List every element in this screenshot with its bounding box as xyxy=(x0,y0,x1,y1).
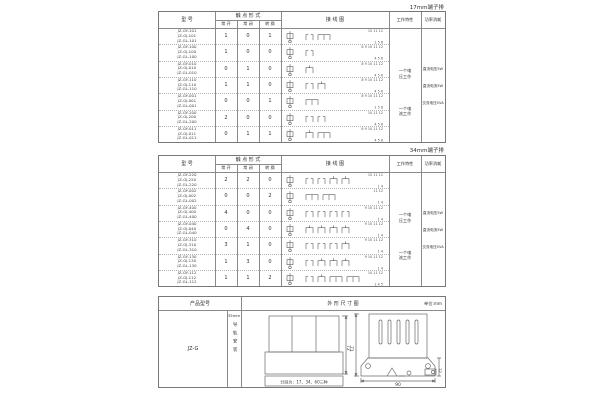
nc-count-cell: 0 xyxy=(237,110,259,126)
model-cell: JZ-GY-400 JZ-GJ-400 JZ-GL-400 xyxy=(160,205,214,221)
table-vline xyxy=(421,156,422,286)
col-header-power: 功率消耗 xyxy=(421,12,445,28)
contact-table-17mm: 型 号触 点 形 式常 开常 闭转 换接 线 图工作特性功率消耗JZ-GY-10… xyxy=(158,11,446,143)
front-view xyxy=(265,316,348,386)
product-model: JZ-G xyxy=(159,310,227,387)
work-note: 一个电 压工作 xyxy=(389,212,421,224)
wiring-diagram: 8 9 10 11 124 5 6 xyxy=(282,77,388,93)
col-header-work: 工作特性 xyxy=(389,156,421,172)
power-note: 直流电压5W xyxy=(421,209,445,217)
wiring-diagram: 10 11 124 5 6 xyxy=(282,110,388,126)
model-cell: JZ-GY-112 JZ-GJ-112 JZ-GL-112 xyxy=(160,270,214,286)
col-header-contact-form: 触 点 形 式 xyxy=(215,12,281,20)
svg-text:10 11 12: 10 11 12 xyxy=(368,173,383,177)
no-count-cell: 1 xyxy=(215,28,237,44)
wiring-diagram: 8 9 10 11 124 5 6 xyxy=(282,126,388,142)
co-count-cell: 0 xyxy=(259,221,281,237)
contact-table-34mm: 型 号触 点 形 式常 开常 闭转 换接 线 图工作特性功率消耗JZ-GY-22… xyxy=(158,155,446,287)
no-count-cell: 2 xyxy=(215,110,237,126)
svg-text:10 11 12: 10 11 12 xyxy=(368,111,383,115)
nc-count-cell: 1 xyxy=(237,61,259,77)
wiring-diagram: 10 11 121 4 5 xyxy=(282,270,388,286)
col-header-no: 常 开 xyxy=(215,164,237,172)
wiring-cell: 10 11 121 4 xyxy=(282,172,388,188)
model-cell: JZ-GY-002 JZ-GJ-002 JZ-GL-002 xyxy=(160,188,214,204)
power-note: 直流电流5W xyxy=(421,82,445,90)
model-cell: JZ-GY-130 JZ-GJ-130 JZ-GL-130 xyxy=(160,254,214,270)
nc-count-cell: 0 xyxy=(237,28,259,44)
power-note: 直流电压5W xyxy=(421,65,445,73)
col-header-nc: 常 闭 xyxy=(237,20,259,28)
wiring-cell: 8 9 10 11 124 5 6 xyxy=(282,126,388,142)
no-count-cell: 4 xyxy=(215,205,237,221)
svg-text:10 11 12: 10 11 12 xyxy=(368,29,383,33)
model-cell: JZ-GY-011 JZ-GJ-011 JZ-GL-011 xyxy=(160,126,214,142)
model-cell: JZ-GY-110 JZ-GJ-110 JZ-GL-110 xyxy=(160,77,214,93)
no-count-cell: 0 xyxy=(215,188,237,204)
svg-text:9 10 11 12: 9 10 11 12 xyxy=(365,238,383,242)
wiring-diagram: 8 9 10 11 121 5 6 xyxy=(282,93,388,109)
co-count-cell: 1 xyxy=(259,93,281,109)
no-count-cell: 1 xyxy=(215,254,237,270)
co-count-cell: 2 xyxy=(259,188,281,204)
wiring-diagram: 10 11 121 4 xyxy=(282,172,388,188)
no-count-cell: 2 xyxy=(215,172,237,188)
wiring-cell: 8 9 10 11 124 5 6 xyxy=(282,61,388,77)
nc-count-cell: 1 xyxy=(237,126,259,142)
model-cell: JZ-GY-010 JZ-GJ-010 JZ-GL-010 xyxy=(160,61,214,77)
wiring-diagram: 9 10 11 121 4 xyxy=(282,237,388,253)
svg-text:9 10 11 12: 9 10 11 12 xyxy=(365,255,383,259)
model-cell: JZ-GY-220 JZ-GJ-220 JZ-GL-220 xyxy=(160,172,214,188)
rail-size: 35mm xyxy=(227,312,241,320)
nc-count-cell: 2 xyxy=(237,172,259,188)
side-width-dim: 90 xyxy=(395,382,401,387)
svg-text:9 10 11 12: 9 10 11 12 xyxy=(365,206,383,210)
svg-text:9 10 11 12: 9 10 11 12 xyxy=(365,222,383,226)
wiring-cell: 11 121 4 xyxy=(282,188,388,204)
col-header-no: 常 开 xyxy=(215,20,237,28)
datasheet-page: 17mm端子排 型 号触 点 形 式常 开常 闭转 换接 线 图工作特性功率消耗… xyxy=(0,0,600,400)
model-cell: JZ-GY-101 JZ-GJ-101 JZ-GL-101 xyxy=(160,28,214,44)
co-count-cell: 0 xyxy=(259,61,281,77)
wiring-cell: 9 10 11 121 4 xyxy=(282,205,388,221)
no-count-cell: 0 xyxy=(215,61,237,77)
wiring-diagram: 11 121 4 xyxy=(282,188,388,204)
table2-caption: 34mm端子排 xyxy=(410,146,444,154)
wiring-diagram: 8 9 10 11 124 5 6 xyxy=(282,44,388,60)
wiring-cell: 10 11 121 5 6 xyxy=(282,28,388,44)
power-note: 交流电压5VA xyxy=(421,243,445,251)
co-count-cell: 1 xyxy=(259,28,281,44)
svg-text:1 4 5: 1 4 5 xyxy=(374,282,383,286)
wiring-diagram: 10 11 121 5 6 xyxy=(282,28,388,44)
wiring-diagram: 9 10 11 121 4 xyxy=(282,221,388,237)
nc-count-cell: 0 xyxy=(237,205,259,221)
wiring-cell: 8 9 10 11 124 5 6 xyxy=(282,77,388,93)
nc-count-cell: 0 xyxy=(237,93,259,109)
col-header-wiring: 接 线 图 xyxy=(281,12,389,28)
co-count-cell: 0 xyxy=(259,110,281,126)
work-note: 一个电 流工作 xyxy=(389,105,421,117)
col-header-work: 工作特性 xyxy=(389,12,421,28)
table-vline xyxy=(421,12,422,142)
unit-label: 单位:mm xyxy=(395,297,445,310)
wiring-cell: 10 11 121 4 5 xyxy=(282,270,388,286)
no-count-cell: 0 xyxy=(215,126,237,142)
svg-text:8 9 10 11 12: 8 9 10 11 12 xyxy=(361,62,383,66)
front-note: 分别为：17、34、60三种 xyxy=(280,379,327,385)
model-cell: JZ-GY-100 JZ-GJ-100 JZ-GL-100 xyxy=(160,44,214,60)
co-count-cell: 1 xyxy=(259,126,281,142)
nc-count-cell: 1 xyxy=(237,77,259,93)
no-count-cell: 1 xyxy=(215,77,237,93)
col-header-contact-form: 触 点 形 式 xyxy=(215,156,281,164)
rail-mount-label: 导轨安装 xyxy=(227,322,241,378)
co-count-cell: 0 xyxy=(259,205,281,221)
no-count-cell: 0 xyxy=(215,221,237,237)
co-count-cell: 0 xyxy=(259,172,281,188)
svg-text:8 9 10 11 12: 8 9 10 11 12 xyxy=(361,94,383,98)
co-count-cell: 0 xyxy=(259,254,281,270)
svg-text:10 11 12: 10 11 12 xyxy=(368,271,383,275)
wiring-cell: 9 10 11 121 4 xyxy=(282,221,388,237)
dim-header-model: 产品型号 xyxy=(159,297,241,310)
svg-text:8 9 10 11 12: 8 9 10 11 12 xyxy=(361,78,383,82)
model-cell: JZ-GY-001 JZ-GJ-001 JZ-GL-001 xyxy=(160,93,214,109)
power-note: 直流电流5W xyxy=(421,226,445,234)
table1-caption: 17mm端子排 xyxy=(410,3,444,11)
dimension-table: 产品型号 外 形 尺 寸 图 单位:mm JZ-G 35mm 导轨安装 xyxy=(158,296,446,388)
nc-count-cell: 1 xyxy=(237,270,259,286)
outline-drawing: 72 分别为：17、34、60三种 71 90 12 xyxy=(241,310,445,387)
wiring-cell: 10 11 124 5 6 xyxy=(282,110,388,126)
col-header-power: 功率消耗 xyxy=(421,156,445,172)
wiring-diagram: 9 10 11 121 4 xyxy=(282,205,388,221)
col-header-wiring: 接 线 图 xyxy=(281,156,389,172)
wiring-diagram: 8 9 10 11 124 5 6 xyxy=(282,61,388,77)
col-header-model: 型 号 xyxy=(159,156,215,172)
col-header-co: 转 换 xyxy=(259,20,281,28)
col-header-co: 转 换 xyxy=(259,164,281,172)
wiring-diagram: 9 10 11 121 4 xyxy=(282,254,388,270)
model-cell: JZ-GY-040 JZ-GJ-040 JZ-GL-040 xyxy=(160,221,214,237)
power-note: 交流电压5VA xyxy=(421,99,445,107)
no-count-cell: 0 xyxy=(215,93,237,109)
svg-text:4 5 6: 4 5 6 xyxy=(374,138,383,142)
co-count-cell: 2 xyxy=(259,270,281,286)
svg-text:8 9 10 11 12: 8 9 10 11 12 xyxy=(361,45,383,49)
nc-count-cell: 4 xyxy=(237,221,259,237)
nc-count-cell: 1 xyxy=(237,237,259,253)
side-view xyxy=(354,314,441,383)
no-count-cell: 1 xyxy=(215,44,237,60)
wiring-cell: 9 10 11 121 4 xyxy=(282,237,388,253)
model-cell: JZ-GY-200 JZ-GJ-200 JZ-GL-200 xyxy=(160,110,214,126)
co-count-cell: 0 xyxy=(259,237,281,253)
svg-text:8 9 10 11 12: 8 9 10 11 12 xyxy=(361,127,383,131)
co-count-cell: 0 xyxy=(259,77,281,93)
wiring-cell: 8 9 10 11 124 5 6 xyxy=(282,44,388,60)
work-note: 一个电 压工作 xyxy=(389,68,421,80)
col-header-model: 型 号 xyxy=(159,12,215,28)
no-count-cell: 3 xyxy=(215,237,237,253)
side-depth-dim: 12 xyxy=(438,368,443,373)
nc-count-cell: 3 xyxy=(237,254,259,270)
nc-count-cell: 0 xyxy=(237,44,259,60)
nc-count-cell: 0 xyxy=(237,188,259,204)
no-count-cell: 1 xyxy=(215,270,237,286)
work-note: 一个电 流工作 xyxy=(389,249,421,261)
svg-text:11 12: 11 12 xyxy=(373,189,383,193)
model-cell: JZ-GY-310 JZ-GJ-310 JZ-GL-310 xyxy=(160,237,214,253)
wiring-cell: 8 9 10 11 121 5 6 xyxy=(282,93,388,109)
wiring-cell: 9 10 11 121 4 xyxy=(282,254,388,270)
side-height-dim: 71 xyxy=(348,346,354,352)
col-header-nc: 常 闭 xyxy=(237,164,259,172)
co-count-cell: 0 xyxy=(259,44,281,60)
